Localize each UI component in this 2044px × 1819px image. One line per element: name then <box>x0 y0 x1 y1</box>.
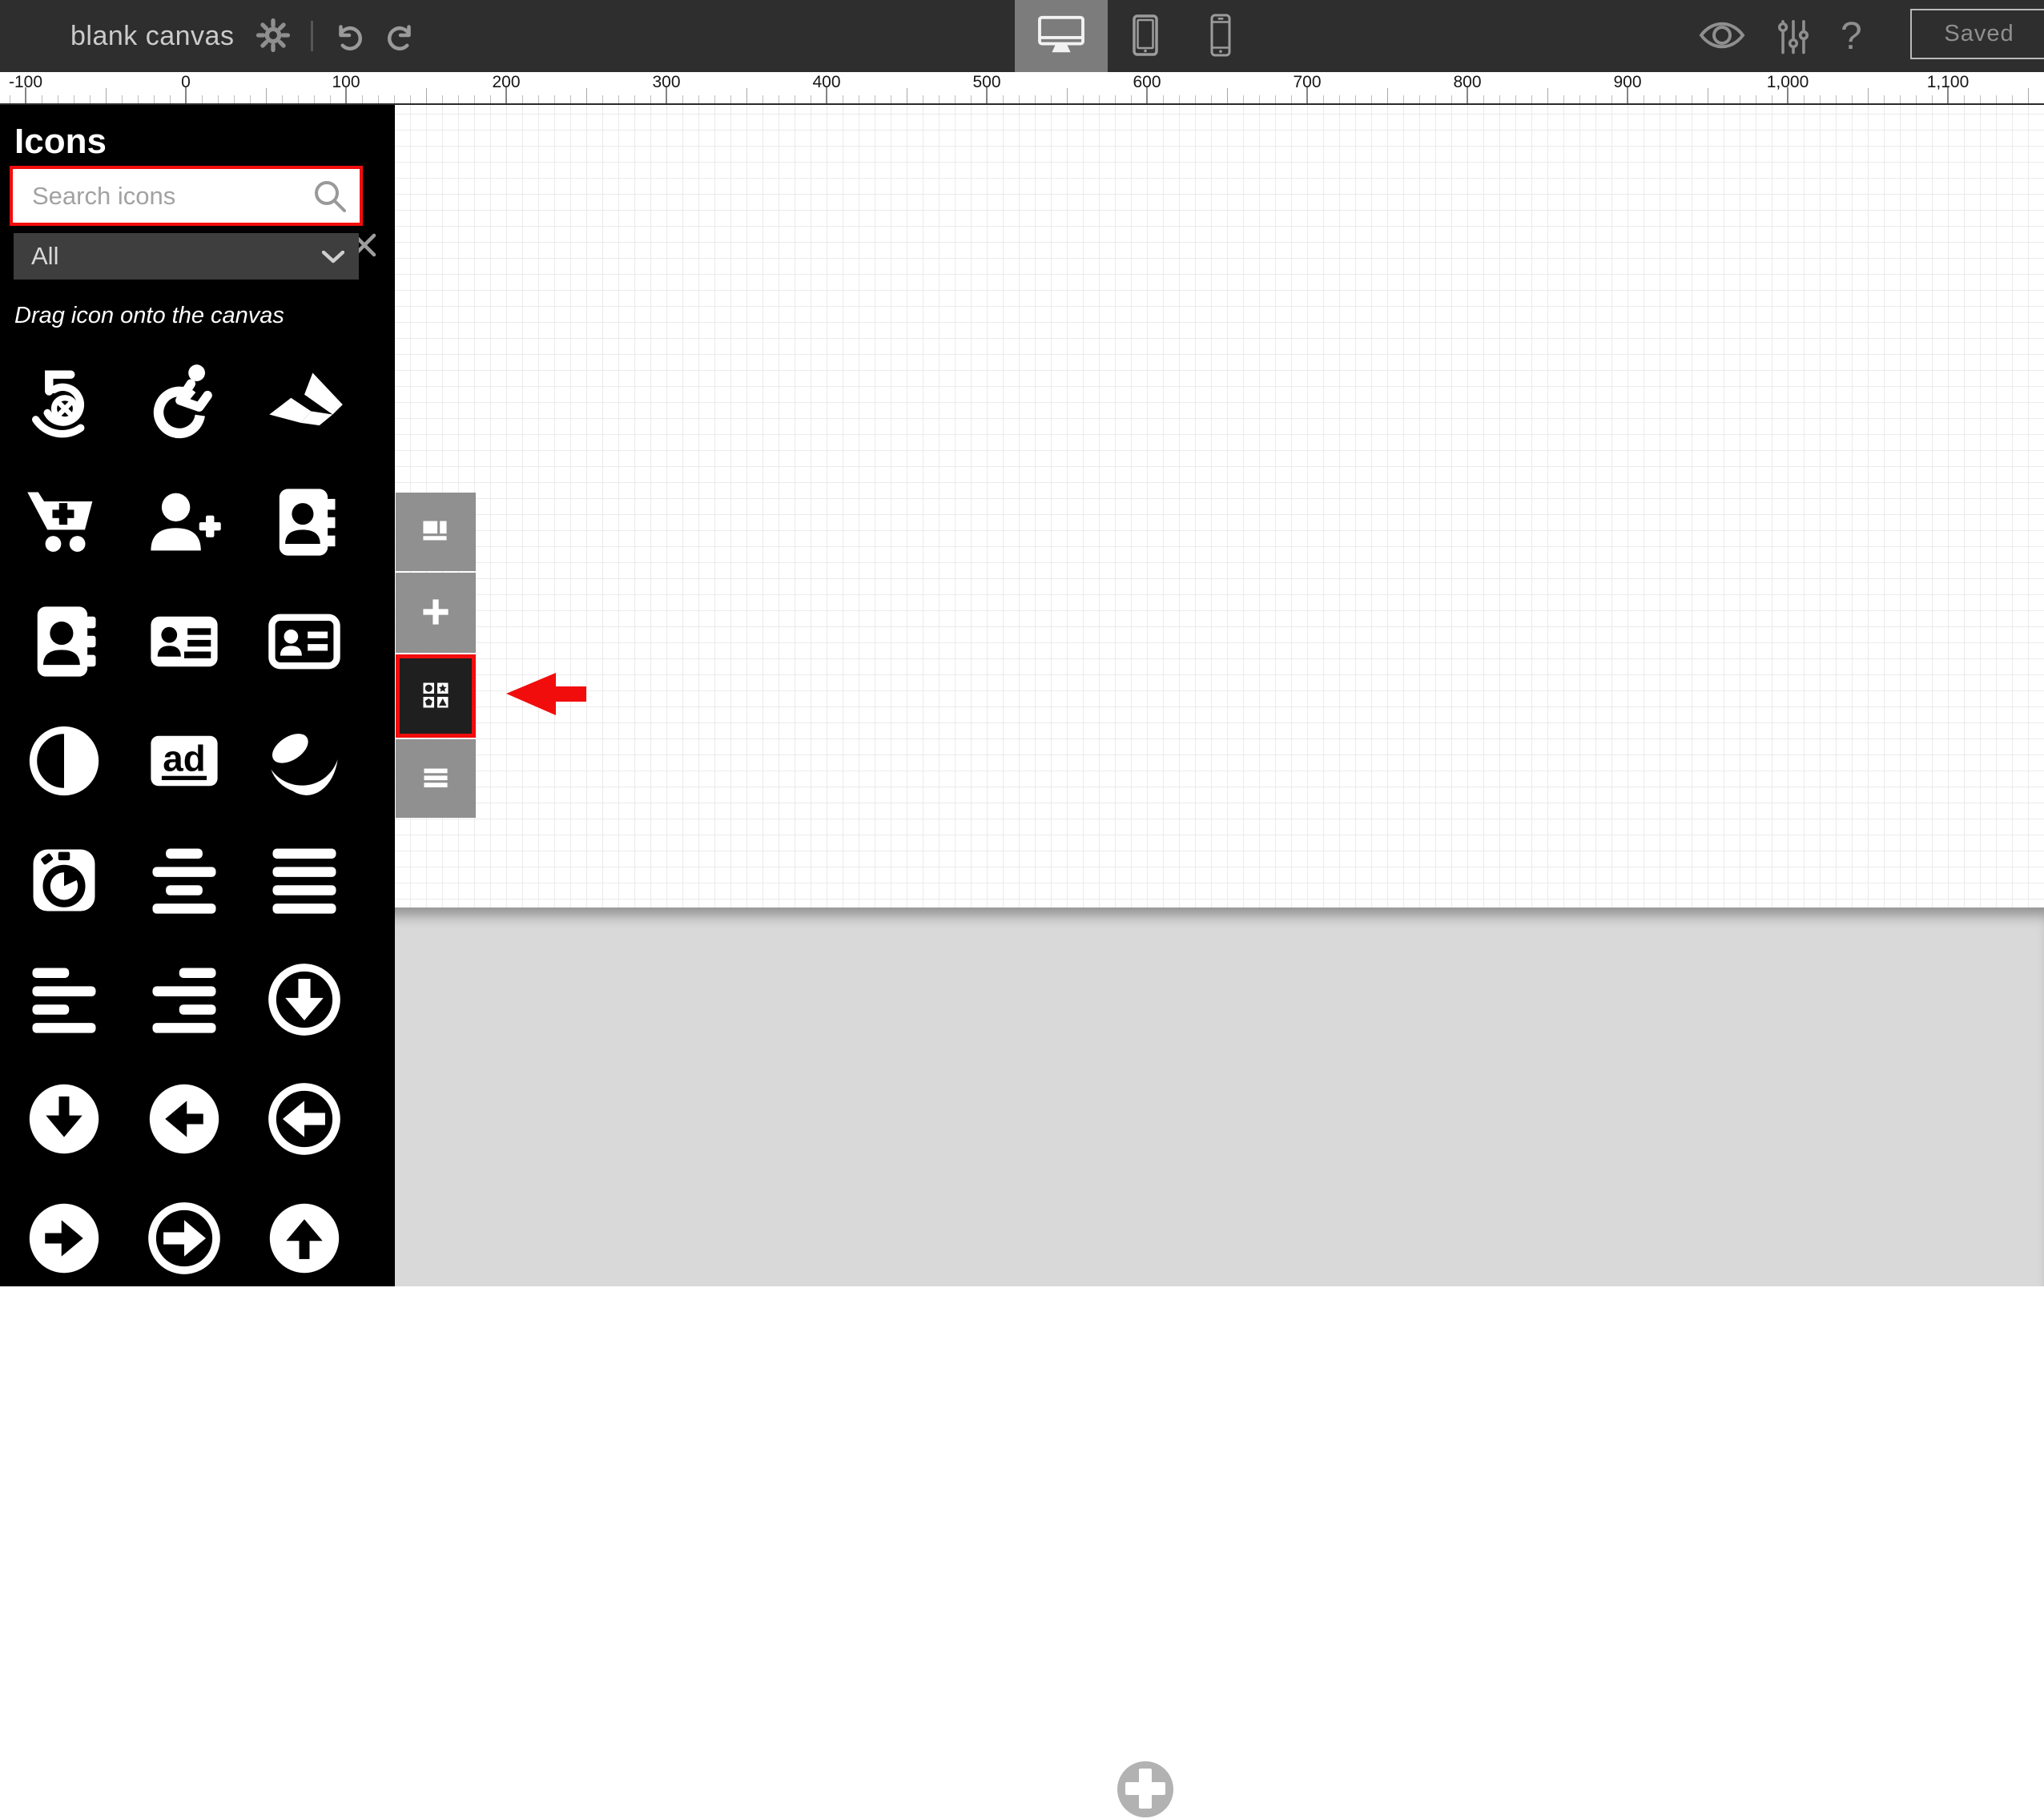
undo-button[interactable] <box>332 18 366 54</box>
panel-icon-align-right[interactable] <box>124 940 244 1059</box>
save-status-button[interactable]: Saved <box>1910 9 2044 59</box>
shapes-button[interactable] <box>396 654 476 738</box>
panel-icon-accusoft[interactable] <box>244 343 364 462</box>
plus-icon <box>415 591 457 635</box>
panel-icon-align-center[interactable] <box>124 820 244 940</box>
shapes-icon <box>416 675 456 718</box>
panel-icon-arrow-alt-circle-left[interactable] <box>244 1059 364 1178</box>
device-switcher <box>1015 0 1258 72</box>
panel-icon-accessible[interactable] <box>124 343 244 462</box>
horizontal-ruler: -10001002003004005006007008009001,0001,1… <box>0 72 2044 105</box>
category-dropdown[interactable]: All <box>14 233 359 280</box>
topbar: blank canvas <box>0 0 2044 72</box>
ruler-ticks <box>0 87 2044 103</box>
panel-icon-arrow-alt-circle-right[interactable] <box>124 1178 244 1286</box>
panel-icon-arrow-circle-left[interactable] <box>124 1059 244 1178</box>
panel-icon-adjust[interactable] <box>4 701 124 820</box>
device-desktop-button[interactable] <box>1015 0 1108 72</box>
eye-icon <box>1698 17 1746 56</box>
phone-icon <box>1208 13 1233 60</box>
icon-grid: ad <box>4 343 364 1286</box>
search-input[interactable] <box>13 169 360 223</box>
icons-panel: Icons All Drag icon onto the canvas <box>0 105 395 1286</box>
device-phone-button[interactable] <box>1183 0 1258 72</box>
panel-icon-stopwatch[interactable] <box>4 820 124 940</box>
plus-icon <box>1117 1761 1173 1819</box>
desktop-icon <box>1036 14 1086 59</box>
preview-button[interactable] <box>1698 0 1746 72</box>
panel-icon-align-justify[interactable] <box>244 820 364 940</box>
device-tablet-button[interactable] <box>1108 0 1183 72</box>
undo-icon <box>332 42 366 54</box>
panel-icon-address-book-solid[interactable] <box>4 582 124 701</box>
tablet-icon <box>1129 13 1162 60</box>
topbar-divider <box>311 21 313 51</box>
category-dropdown-value: All <box>31 242 58 271</box>
redo-icon <box>384 42 417 54</box>
adjustments-button[interactable] <box>1775 0 1812 72</box>
question-icon: ? <box>1841 14 1862 58</box>
chevron-down-icon <box>322 251 344 268</box>
panel-icon-address-card-outline[interactable] <box>244 582 364 701</box>
panel-icon-arrow-circle-down[interactable] <box>4 1059 124 1178</box>
project-settings-button[interactable] <box>255 17 292 56</box>
menu-icon <box>415 757 457 801</box>
panel-title: Icons <box>14 122 107 162</box>
topbar-left-group: blank canvas <box>70 0 417 72</box>
panel-icon-500px[interactable] <box>4 343 124 462</box>
menu-button[interactable] <box>396 739 476 818</box>
search-box-highlight-frame <box>10 166 363 226</box>
panel-icon-align-left[interactable] <box>4 940 124 1059</box>
pages-layout-button[interactable] <box>396 493 476 571</box>
panel-icon-arrow-alt-circle-down[interactable] <box>244 940 364 1059</box>
panel-icon-cart-plus[interactable] <box>4 462 124 582</box>
panel-icon-arrow-circle-up[interactable] <box>244 1178 364 1286</box>
drag-hint-text: Drag icon onto the canvas <box>14 302 284 329</box>
help-button[interactable]: ? <box>1841 0 1862 72</box>
panel-icon-ad[interactable]: ad <box>124 701 244 820</box>
add-page-button[interactable] <box>1117 1761 1173 1817</box>
gear-icon <box>255 17 292 56</box>
svg-text:ad: ad <box>163 738 205 779</box>
panel-icon-user-plus[interactable] <box>124 462 244 582</box>
red-arrow-annotation <box>506 673 586 719</box>
sliders-icon <box>1775 13 1812 60</box>
add-element-button[interactable] <box>396 573 476 653</box>
project-title[interactable]: blank canvas <box>70 21 234 52</box>
pages-layout-icon <box>415 510 457 554</box>
redo-button[interactable] <box>384 18 417 54</box>
panel-icon-address-book[interactable] <box>244 462 364 582</box>
panel-icon-affiliatetheme[interactable] <box>244 701 364 820</box>
panel-icon-arrow-circle-right[interactable] <box>4 1178 124 1286</box>
canvas-toolbar <box>396 493 476 819</box>
panel-icon-address-card[interactable] <box>124 582 244 701</box>
